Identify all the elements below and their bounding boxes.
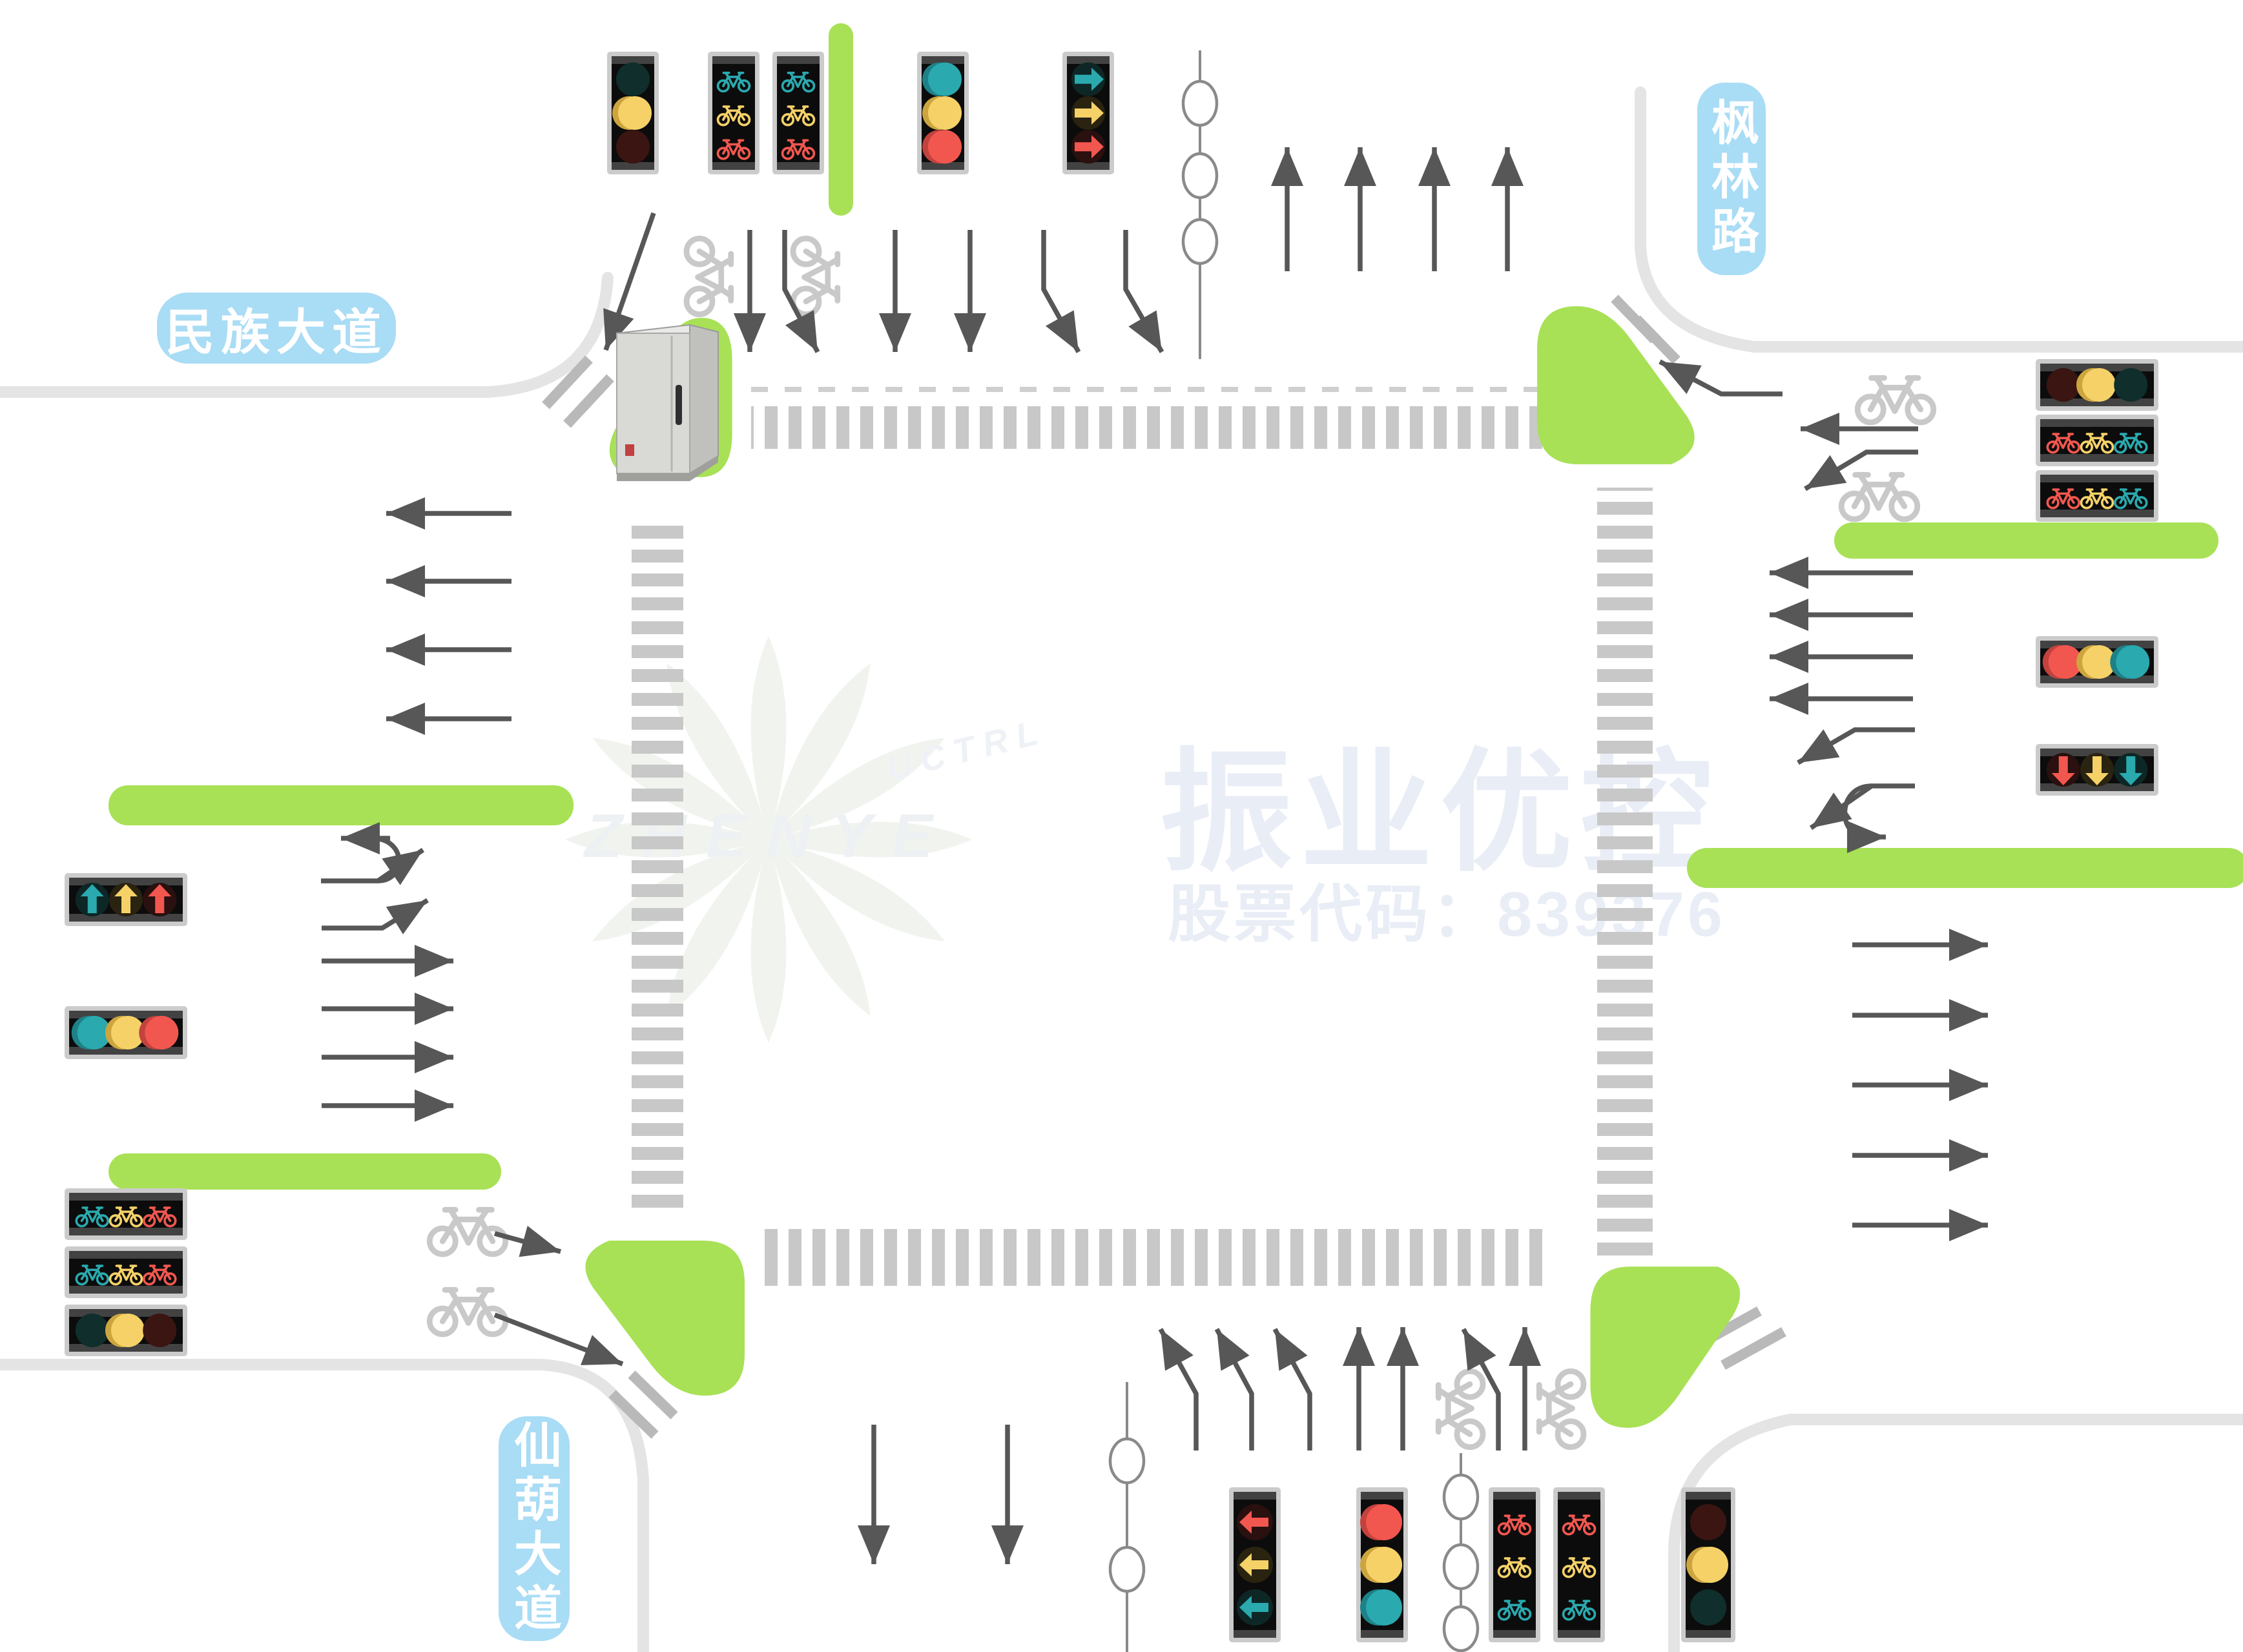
pavement-bike-icon <box>687 238 731 315</box>
crosswalk-east <box>1597 488 1653 1260</box>
signal-west-arrow-up <box>65 873 187 926</box>
lane-arrow-south-in-5 <box>1387 1327 1419 1451</box>
signal-north-disc-2 <box>917 52 969 174</box>
lane-arrow-north-in-6 <box>1126 230 1162 352</box>
lane-arrow-east-in-2 <box>1770 599 1913 631</box>
signal-south-bike-2 <box>1553 1487 1605 1642</box>
detector-chains <box>1110 50 1478 1652</box>
lane-arrow-east-out-1 <box>1852 929 1988 961</box>
lane-arrow-south-in-4 <box>1343 1327 1375 1451</box>
green-strip-east-upper <box>1834 522 2218 559</box>
lane-arrow-north-out-4 <box>1491 147 1524 271</box>
signal-south-arrow-left <box>1229 1487 1281 1642</box>
corner-island-northeast <box>1537 306 1695 464</box>
lane-arrow-east-in-bend <box>1798 729 1915 763</box>
detector-chain <box>1183 50 1217 359</box>
lane-arrow-east-in-4 <box>1770 683 1913 715</box>
pavement-bike-icon <box>793 238 838 315</box>
median-strip-north <box>829 23 853 216</box>
road-graphics <box>0 0 2243 1652</box>
lane-arrow-west-in-uturn <box>321 850 423 885</box>
signal-south-bike-1 <box>1489 1487 1540 1642</box>
lane-arrow-north-in-4 <box>954 230 986 352</box>
lane-arrow-west-in-bend <box>322 900 428 934</box>
green-lanes <box>109 23 2243 1428</box>
pavement-bike-icon <box>1841 475 1917 519</box>
crosswalks <box>632 389 1653 1286</box>
green-strip-east-lower <box>1687 848 2243 888</box>
corner-island-southeast <box>1590 1266 1740 1428</box>
signal-north-arrow-right <box>1062 52 1114 174</box>
signal-west-bike-1 <box>65 1188 187 1240</box>
signal-east-disc-1 <box>2036 359 2158 411</box>
lane-arrow-east-bike-2 <box>1805 452 1918 489</box>
lane-arrow-north-in-5 <box>1044 230 1079 352</box>
lane-arrow-south-out-1 <box>858 1425 890 1564</box>
lane-arrow-west-in-3 <box>322 1041 453 1073</box>
signal-south-disc-2 <box>1681 1487 1735 1642</box>
lane-arrow-west-in-1 <box>322 945 453 977</box>
lane-arrow-east-out-2 <box>1852 999 1988 1031</box>
pavement-bike-icon <box>1438 1371 1483 1447</box>
pavement-bike-icon <box>1857 378 1934 422</box>
lane-arrow-west-in-4 <box>322 1089 453 1122</box>
signal-north-bike-1 <box>708 52 760 174</box>
signal-east-arrow-down <box>2036 744 2158 796</box>
crosswalk-north <box>751 406 1545 449</box>
corner-island-southwest <box>585 1241 745 1396</box>
crosswalk-south <box>759 1229 1544 1286</box>
signal-north-disc-1 <box>607 52 659 174</box>
green-strip-west-lower <box>109 1153 501 1190</box>
lane-arrow-east-out-5 <box>1852 1209 1988 1241</box>
lane-arrow-west-out-4 <box>386 703 512 735</box>
lane-arrow-south-in-1 <box>1161 1329 1196 1451</box>
signal-north-bike-2 <box>772 52 824 174</box>
crosswalk-west <box>632 515 683 1216</box>
lane-arrow-north-out-3 <box>1418 147 1451 271</box>
lane-arrow-west-out-3 <box>386 634 512 666</box>
lane-arrow-west-out-1 <box>386 497 512 530</box>
signal-west-disc-1 <box>65 1006 187 1059</box>
lane-arrow-west-bike-merge-2 <box>495 1315 623 1365</box>
signal-east-bike-1 <box>2036 415 2158 466</box>
road-label-xianhu-avenue: 仙葫大道 <box>499 1416 570 1641</box>
intersection-diagram: ZHENYE UCTRL 振业优控 股票代码：839376 <box>0 0 2243 1652</box>
lane-arrow-east-out-4 <box>1852 1139 1988 1172</box>
pavement-bike-icon <box>429 1210 506 1254</box>
signal-east-disc-2 <box>2036 636 2158 688</box>
signal-west-bike-2 <box>65 1246 187 1298</box>
lane-arrow-south-in-7 <box>1509 1327 1541 1451</box>
lane-arrow-east-in-uturn <box>1811 786 1915 828</box>
lane-arrow-south-in-2 <box>1217 1329 1252 1451</box>
green-strip-west-upper <box>109 785 574 825</box>
pavement-bike-icon <box>429 1290 506 1334</box>
lane-arrow-south-out-2 <box>991 1425 1024 1564</box>
lane-arrow-west-out-2 <box>386 565 512 597</box>
lane-arrow-west-in-2 <box>322 993 453 1025</box>
signal-east-bike-2 <box>2036 470 2158 522</box>
lane-arrow-slip-top-right <box>1660 362 1783 394</box>
lane-arrow-north-in-1 <box>734 230 766 352</box>
lane-arrow-south-in-3 <box>1275 1329 1310 1451</box>
detector-chain <box>1444 1453 1478 1652</box>
pavement-bike-icon <box>1539 1371 1584 1447</box>
road-label-fenglin-road: 枫林路 <box>1697 83 1766 275</box>
lane-arrow-east-in-1 <box>1770 557 1913 589</box>
detector-chain <box>1110 1382 1144 1652</box>
lane-arrow-north-out-2 <box>1344 147 1376 271</box>
signal-south-disc-1 <box>1356 1487 1408 1642</box>
lane-arrow-east-in-3 <box>1770 641 1913 673</box>
signal-controller-cabinet <box>617 325 718 481</box>
lane-arrow-north-out-1 <box>1271 147 1303 271</box>
lane-arrow-east-out-3 <box>1852 1069 1988 1101</box>
signal-west-disc-2 <box>65 1305 187 1356</box>
lane-arrow-north-in-3 <box>879 230 911 352</box>
road-label-minzu-avenue: 民族大道 <box>157 293 396 364</box>
